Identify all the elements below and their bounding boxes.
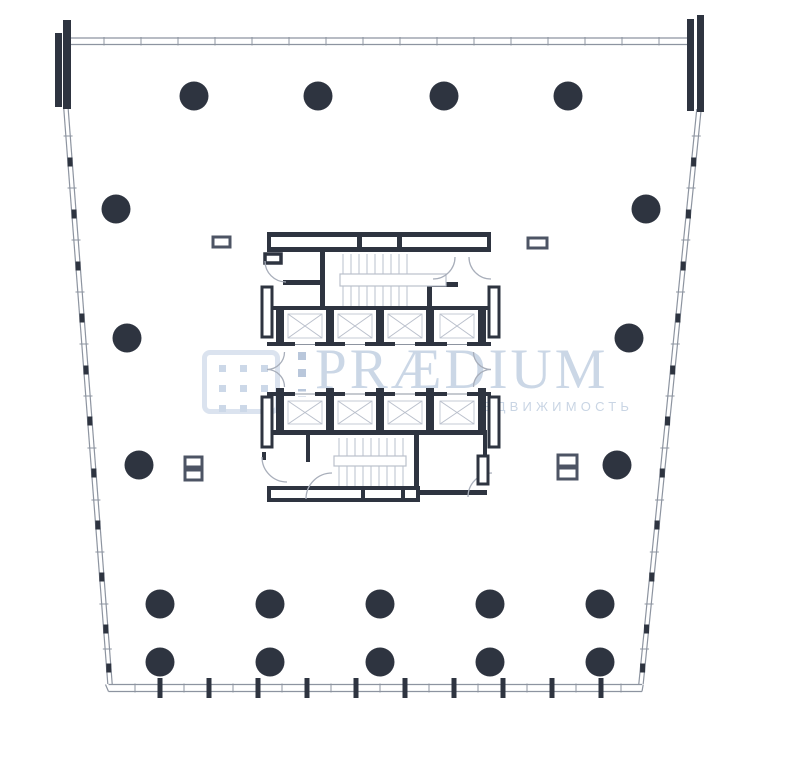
structural-column (615, 324, 644, 353)
vent-shaft (185, 470, 202, 480)
elevator-pier (276, 306, 284, 346)
elevator-pier (426, 306, 434, 346)
elevator-shaft (436, 310, 478, 342)
elevator-shaft (284, 397, 326, 428)
structural-column (146, 590, 175, 619)
elevator-pier (276, 388, 284, 432)
structural-column (603, 451, 632, 480)
floor-plan-canvas: PRÆDIUM КОММЕРЧЕСКАЯ НЕДВИЖИМОСТЬ (0, 0, 806, 768)
elevator-pier (426, 388, 434, 432)
vent-shaft (558, 468, 577, 479)
structural-column (366, 590, 395, 619)
elevator-pier (326, 306, 334, 346)
vent-shaft (528, 238, 547, 248)
elevator-pier (376, 388, 384, 432)
structural-column (366, 648, 395, 677)
structural-column (256, 648, 285, 677)
structural-column (102, 195, 131, 224)
structural-column (125, 451, 154, 480)
vent-shaft (213, 237, 230, 247)
elevator-shaft (384, 310, 426, 342)
structural-column (554, 82, 583, 111)
solid-wall-bar (687, 19, 694, 111)
solid-wall-bar (63, 20, 71, 109)
vent-shaft (558, 455, 577, 466)
structural-column (256, 590, 285, 619)
structural-column (586, 590, 615, 619)
elevator-pier (376, 306, 384, 346)
solid-wall-bars (55, 15, 704, 112)
elevator-pier (326, 388, 334, 432)
elevator-bank (267, 388, 491, 435)
elevator-pier (478, 306, 486, 346)
floor-plan-svg (0, 0, 806, 768)
column-grid (102, 82, 661, 677)
elevator-banks (267, 306, 491, 435)
solid-wall-bar (55, 33, 62, 107)
stair-landing (334, 456, 406, 466)
structural-column (476, 590, 505, 619)
structural-column (180, 82, 209, 111)
solid-wall-bar (697, 15, 704, 112)
elevator-shaft (436, 397, 478, 428)
elevator-shaft (384, 397, 426, 428)
stair-landing (340, 274, 446, 286)
vent-shaft (185, 457, 202, 467)
structural-column (430, 82, 459, 111)
elevator-bank (267, 306, 491, 347)
structural-column (304, 82, 333, 111)
elevator-shaft (334, 397, 376, 428)
stairwell (334, 438, 406, 486)
elevator-pier (478, 388, 486, 432)
structural-column (113, 324, 142, 353)
elevator-shaft (334, 310, 376, 342)
structural-column (632, 195, 661, 224)
structural-column (476, 648, 505, 677)
structural-column (586, 648, 615, 677)
structural-column (146, 648, 175, 677)
elevator-shaft (284, 310, 326, 342)
